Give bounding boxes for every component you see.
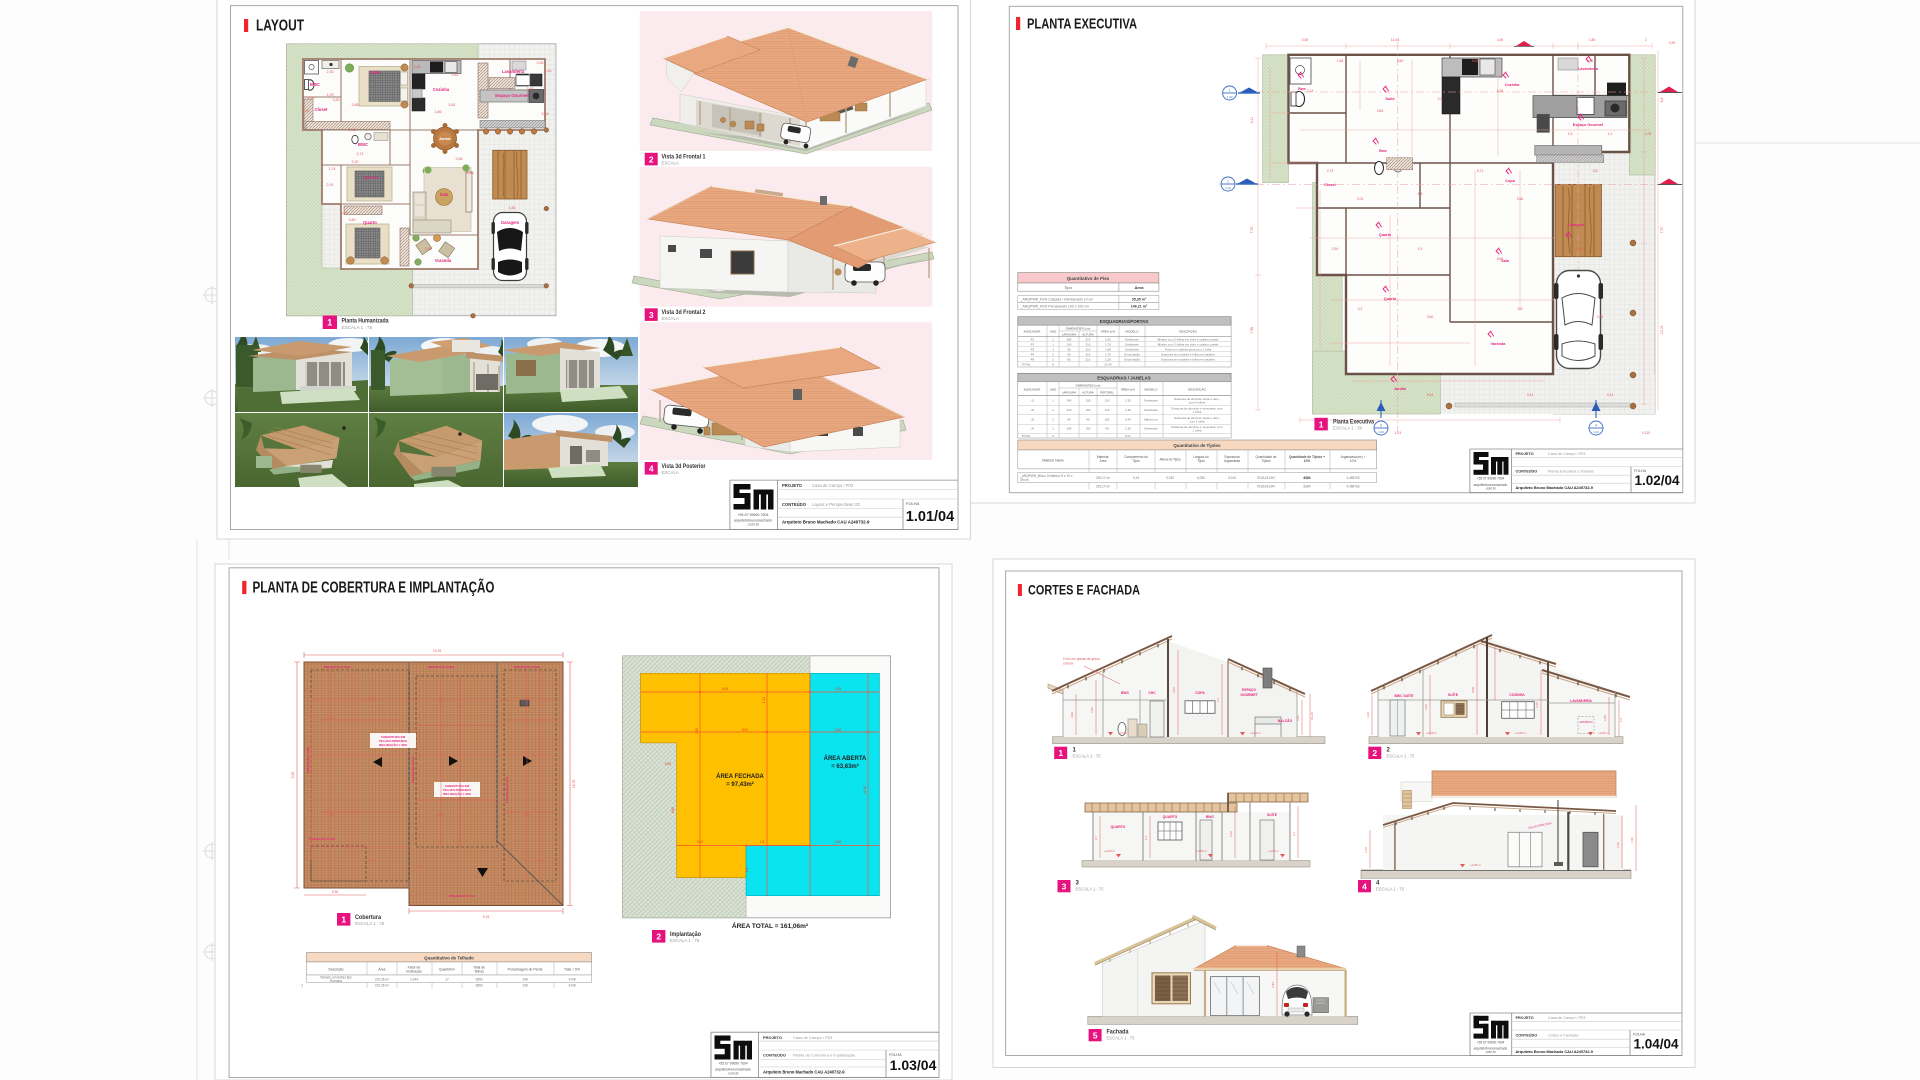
svg-text:3,16: 3,16: [1535, 702, 1539, 708]
svg-text:0,94: 0,94: [438, 813, 445, 817]
svg-text:1,70: 1,70: [1105, 342, 1111, 346]
svg-text:3,1: 3,1: [1292, 832, 1296, 837]
svg-text:LAYOUT: LAYOUT: [256, 18, 304, 35]
svg-text:Arquiteto Bruno Machado CAU A2: Arquiteto Bruno Machado CAU A240732-9: [1516, 485, 1594, 490]
svg-text:ARMÁRIO: ARMÁRIO: [1579, 720, 1593, 724]
svg-text:100: 100: [1086, 399, 1091, 403]
svg-text:222,36 m²: 222,36 m²: [375, 978, 389, 982]
svg-text:4,468763: 4,468763: [1346, 476, 1360, 480]
svg-text:ESCALA 1 : 75: ESCALA 1 : 75: [1107, 1036, 1136, 1041]
svg-text:+0,05 m: +0,05 m: [1196, 849, 1207, 853]
svg-text:Copa: Copa: [1505, 179, 1515, 183]
svg-text:Layout e Perspectivas 3D: Layout e Perspectivas 3D: [812, 502, 860, 507]
svg-text:3850: 3850: [475, 978, 482, 982]
svg-text:3,50: 3,50: [369, 697, 376, 701]
svg-text:Tipo: Tipo: [1064, 285, 1072, 290]
svg-text:Fachada: Fachada: [1107, 1029, 1129, 1036]
svg-text:Varanda: Varanda: [435, 258, 452, 263]
svg-text:1,86: 1,86: [1337, 59, 1344, 63]
svg-text:0,90: 0,90: [524, 697, 531, 701]
svg-text:Forro em placas de gesso: Forro em placas de gesso: [1063, 657, 1100, 661]
svg-text:Varanda: Varanda: [1491, 342, 1507, 346]
svg-text:6,80: 6,80: [671, 807, 675, 813]
svg-text:3,2: 3,2: [1358, 307, 1363, 311]
svg-text:PLAK: PLAK: [1310, 712, 1314, 720]
svg-text:Tijolos: Tijolos: [1261, 459, 1270, 463]
svg-text:3,81: 3,81: [452, 73, 459, 77]
svg-text:0,90: 0,90: [327, 813, 334, 817]
svg-text:CHC: CHC: [1148, 691, 1156, 695]
svg-text:210: 210: [1086, 352, 1091, 356]
svg-text:5,35: 5,35: [291, 772, 295, 779]
svg-text:8,94: 8,94: [742, 728, 748, 732]
svg-text:Cortes e Fachada: Cortes e Fachada: [1548, 1033, 1579, 1037]
svg-text:Máximo ar: Máximo ar: [1144, 417, 1158, 421]
svg-text:+0,00 m: +0,00 m: [1598, 731, 1609, 735]
svg-text:1,74: 1,74: [1395, 431, 1402, 435]
svg-text:.com.br: .com.br: [1485, 487, 1497, 491]
svg-text:100: 100: [1086, 408, 1091, 412]
svg-text:PROJETO: PROJETO: [1516, 1016, 1534, 1020]
svg-text:BALCÃO: BALCÃO: [1278, 718, 1293, 723]
svg-text:2,00: 2,00: [303, 109, 310, 113]
svg-text:Deslizante: Deslizante: [1144, 408, 1158, 412]
svg-text:ESQUADRIAS/PORTAS: ESQUADRIAS/PORTAS: [1100, 319, 1149, 324]
svg-text:TOTAL: TOTAL: [1021, 363, 1030, 367]
svg-text:BWC SUÍTE: BWC SUÍTE: [1394, 693, 1414, 698]
svg-text:2,04: 2,04: [1597, 315, 1604, 319]
svg-text:PROJEÇÃO CASA: PROJEÇÃO CASA: [324, 664, 351, 669]
svg-text:PEITORIL: PEITORIL: [1100, 391, 1114, 395]
svg-text:1,74: 1,74: [329, 167, 336, 171]
svg-text:ÁREA ABERTA: ÁREA ABERTA: [824, 755, 867, 762]
svg-text:5,34: 5,34: [1427, 393, 1434, 397]
svg-text:3,85: 3,85: [352, 103, 359, 107]
svg-text:3,29: 3,29: [341, 211, 348, 215]
svg-text:ESPAÇO: ESPAÇO: [1242, 688, 1256, 692]
svg-text:4148: 4148: [568, 984, 575, 988]
svg-text:3,85: 3,85: [509, 206, 516, 210]
svg-text:-P1: -P1: [1030, 337, 1035, 341]
svg-text:PLANTA DE COBERTURA E IMPLANTA: PLANTA DE COBERTURA E IMPLANTAÇÃO: [253, 578, 495, 596]
svg-text:2,56: 2,56: [369, 859, 376, 863]
svg-text:3,30: 3,30: [352, 160, 359, 164]
svg-text:-P2: -P2: [1030, 342, 1035, 346]
svg-text:Lavanderia: Lavanderia: [1578, 67, 1599, 71]
svg-text:INDICADOR: INDICADOR: [1024, 330, 1042, 334]
svg-text:150: 150: [1105, 417, 1110, 421]
svg-text:Closet: Closet: [315, 107, 328, 112]
svg-text:Quarto: Quarto: [1379, 233, 1392, 237]
svg-text:DESCRIÇÃO: DESCRIÇÃO: [1188, 387, 1207, 392]
svg-text:3,14: 3,14: [1527, 393, 1534, 397]
svg-text:2,54: 2,54: [1332, 247, 1339, 251]
svg-text:QUARTO: QUARTO: [1163, 815, 1178, 819]
svg-text:BWC: BWC: [358, 142, 368, 147]
svg-text:1.04/04: 1.04/04: [1633, 1037, 1679, 1052]
svg-text:Espaço Gourmet: Espaço Gourmet: [1573, 123, 1604, 127]
svg-text:3,60: 3,60: [1427, 315, 1434, 319]
svg-text:210: 210: [1086, 337, 1091, 341]
svg-text:Implantação: Implantação: [670, 931, 701, 938]
svg-text:7,70: 7,70: [1660, 227, 1664, 234]
svg-text:Tijolo: Tijolo: [1197, 459, 1205, 463]
svg-text:1.04: 1.04: [1378, 430, 1384, 434]
svg-text:90: 90: [1067, 352, 1071, 356]
svg-text:Material: Name: Material: Name: [1042, 459, 1064, 463]
svg-text:2,04: 2,04: [1357, 197, 1364, 201]
svg-text:1: 1: [1058, 748, 1063, 758]
svg-text:210: 210: [1086, 357, 1091, 361]
svg-text:Casa de Campo / P03: Casa de Campo / P03: [793, 1035, 833, 1040]
svg-text:2,30: 2,30: [327, 70, 334, 74]
svg-text:ESCALA: ESCALA: [662, 161, 679, 166]
svg-text:+0,05 m: +0,05 m: [1118, 731, 1129, 735]
svg-text:1.04: 1.04: [1227, 95, 1233, 99]
svg-text:2,91: 2,91: [327, 183, 334, 187]
svg-text:2,62: 2,62: [1296, 715, 1300, 721]
svg-text:com 6 folhas: com 6 folhas: [1189, 401, 1206, 405]
svg-text:3,55: 3,55: [1302, 38, 1309, 42]
svg-text:Deslizante: Deslizante: [1125, 337, 1139, 341]
svg-text:Telhas: Telhas: [474, 970, 484, 974]
svg-text:5,35: 5,35: [332, 890, 339, 894]
svg-text:+0,05 m: +0,05 m: [1104, 849, 1115, 853]
svg-text:Quantd/m²: Quantd/m²: [439, 968, 456, 972]
svg-text:222,36 m²: 222,36 m²: [375, 984, 389, 988]
svg-text:146,21 m²: 146,21 m²: [1131, 305, 1148, 309]
svg-text:2,30: 2,30: [1125, 399, 1131, 403]
svg-text:4: 4: [1595, 424, 1597, 428]
svg-text:210: 210: [1086, 342, 1091, 346]
svg-text:6,34: 6,34: [1497, 89, 1504, 93]
svg-text:1,6: 1,6: [745, 868, 749, 873]
svg-text:3,46: 3,46: [1497, 38, 1504, 42]
svg-text:2,14: 2,14: [1307, 89, 1314, 93]
svg-text:0,015: 0,015: [1228, 476, 1236, 480]
svg-text:3,80: 3,80: [349, 218, 356, 222]
svg-text:PROJETO: PROJETO: [782, 483, 803, 488]
svg-text:Planta Executiva: Planta Executiva: [1333, 419, 1374, 426]
svg-text:Planta de Cobertura e Implanta: Planta de Cobertura e Implantação: [793, 1052, 856, 1057]
svg-text:1.04: 1.04: [1225, 186, 1231, 190]
svg-text:ESCALA 1 : 75: ESCALA 1 : 75: [1076, 887, 1105, 892]
svg-text:Deslizante: Deslizante: [1144, 399, 1158, 403]
svg-text:BWC: BWC: [1206, 815, 1215, 819]
svg-text:Descrição: Descrição: [328, 968, 343, 972]
svg-text:+0,05 m: +0,05 m: [1268, 849, 1279, 853]
svg-text:ESCALA 1 : 75: ESCALA 1 : 75: [1376, 887, 1405, 892]
svg-text:BWC: BWC: [1121, 691, 1130, 695]
svg-text:Argamassa: Argamassa: [1224, 459, 1240, 463]
svg-text:0,34: 0,34: [1125, 417, 1131, 421]
svg-text:1: 1: [1319, 419, 1324, 429]
svg-text:CONTEÚDO: CONTEÚDO: [782, 502, 807, 507]
svg-text:SUÍTE: SUÍTE: [1448, 692, 1459, 697]
svg-text:-P3: -P3: [1030, 347, 1035, 351]
svg-text:LARGURA: LARGURA: [1062, 333, 1077, 337]
svg-text:ESCALA 1 : 75: ESCALA 1 : 75: [1387, 753, 1416, 758]
svg-text:-J1: -J1: [1030, 399, 1034, 403]
svg-text:PROJETO: PROJETO: [1516, 452, 1534, 456]
svg-text:13,09: 13,09: [1660, 326, 1664, 335]
svg-text:Planta Humanizada: Planta Humanizada: [342, 318, 389, 325]
svg-text:Área: Área: [1100, 459, 1107, 463]
svg-text:1,45: 1,45: [349, 128, 356, 132]
svg-text:2,74: 2,74: [1327, 169, 1334, 173]
svg-text:2,30: 2,30: [695, 728, 699, 734]
svg-text:TOTAL: TOTAL: [1021, 434, 1030, 438]
svg-text:+0,05 m: +0,05 m: [1515, 731, 1526, 735]
svg-text:4,5: 4,5: [1418, 247, 1423, 251]
svg-text:+55 67 99690 7604: +55 67 99690 7604: [718, 1062, 747, 1066]
svg-text:Arquiteto Bruno Machado CAU A2: Arquiteto Bruno Machado CAU A240732-9: [763, 1070, 845, 1075]
svg-text:Estrutura em madeira e folha e: Estrutura em madeira e folha em madeira: [1161, 352, 1215, 356]
svg-text:CONTEÚDO: CONTEÚDO: [1516, 1032, 1538, 1037]
svg-text:ESCALA 1 : 75: ESCALA 1 : 75: [1073, 753, 1102, 758]
svg-text:_ARQPWR_RVS Porcelanato 100 x: _ARQPWR_RVS Porcelanato 100 x 100 cm: [1020, 305, 1089, 309]
svg-text:CORTES E FACHADA: CORTES E FACHADA: [1028, 582, 1140, 598]
svg-text:40: 40: [1105, 427, 1109, 431]
svg-text:1,36: 1,36: [467, 171, 474, 175]
svg-text:_ARQPWR_RVS Calçada / Intertra: _ARQPWR_RVS Calçada / Intertravado 10 cm: [1020, 298, 1094, 302]
svg-text:Sala: Sala: [440, 192, 449, 197]
svg-text:17: 17: [445, 978, 449, 982]
svg-text:10%: 10%: [1304, 459, 1311, 463]
svg-text:198: 198: [522, 978, 528, 982]
svg-text:-J4: -J4: [1030, 427, 1034, 431]
svg-text:+55 67 99690 7604: +55 67 99690 7604: [1477, 477, 1505, 481]
svg-text:Vista 3d Frontal 1: Vista 3d Frontal 1: [662, 154, 706, 161]
svg-text:DESCRIÇÃO: DESCRIÇÃO: [1179, 329, 1198, 334]
svg-text:.com.br: .com.br: [727, 1071, 739, 1075]
svg-text:Closet: Closet: [1324, 183, 1336, 187]
svg-text:-J2: -J2: [1030, 408, 1034, 412]
svg-text:INCLINAÇÃO ± 30%: INCLINAÇÃO ± 30%: [443, 791, 471, 796]
svg-text:9,05: 9,05: [722, 687, 728, 691]
svg-text:Total + 5%: Total + 5%: [564, 968, 580, 972]
svg-text:DIMENSÕES (cm): DIMENSÕES (cm): [1076, 383, 1101, 388]
svg-text:0,99: 0,99: [1669, 41, 1676, 45]
svg-text:Arquiteto Bruno Machado CAU A2: Arquiteto Bruno Machado CAU A240732-9: [782, 520, 870, 525]
svg-text:5,6: 5,6: [418, 865, 423, 869]
svg-text:1,86: 1,86: [414, 65, 421, 69]
svg-text:4,5: 4,5: [1578, 247, 1583, 251]
svg-text:35,35 m²: 35,35 m²: [1132, 298, 1147, 302]
svg-text:80: 80: [1067, 357, 1071, 361]
svg-text:1.02/04: 1.02/04: [1634, 473, 1680, 488]
svg-text:5,66: 5,66: [1472, 59, 1479, 63]
svg-text:3,95: 3,95: [835, 687, 841, 691]
svg-text:4: 4: [649, 464, 654, 474]
svg-text:39 cm: 39 cm: [1020, 478, 1029, 482]
svg-text:Casa de Campo / P03: Casa de Campo / P03: [1548, 1016, 1585, 1020]
svg-text:ÁREA TOTAL = 161,06m²: ÁREA TOTAL = 161,06m²: [732, 921, 809, 930]
svg-text:Planta Executiva e Tabelas: Planta Executiva e Tabelas: [1548, 469, 1594, 473]
svg-text:15,29: 15,29: [433, 649, 442, 653]
svg-text:5,08: 5,08: [1471, 687, 1475, 693]
svg-text:Estrutura em madeira e folha e: Estrutura em madeira e folha em madeira: [1161, 357, 1215, 361]
svg-text:.com.br: .com.br: [1485, 1050, 1497, 1054]
svg-text:1,89: 1,89: [1105, 347, 1111, 351]
svg-text:PLANTA EXECUTIVA: PLANTA EXECUTIVA: [1027, 16, 1137, 33]
svg-text:2,7: 2,7: [1144, 836, 1148, 841]
svg-text:Giro/rotação: Giro/rotação: [1124, 357, 1140, 361]
svg-text:FOLHA: FOLHA: [906, 501, 920, 506]
svg-text:8384: 8384: [1303, 485, 1310, 489]
svg-text:Cozinha: Cozinha: [433, 87, 450, 92]
svg-text:+0,05 m: +0,05 m: [1426, 731, 1437, 735]
svg-text:0,110: 0,110: [1642, 431, 1650, 435]
svg-text:3850: 3850: [475, 984, 482, 988]
svg-text:110: 110: [1105, 408, 1110, 412]
svg-text:ALTURA: ALTURA: [1082, 333, 1094, 337]
svg-text:0,90: 0,90: [524, 813, 531, 817]
svg-text:3: 3: [301, 984, 303, 988]
svg-text:6,16: 6,16: [542, 112, 549, 116]
svg-text:BWC: BWC: [310, 82, 320, 87]
svg-text:110: 110: [1067, 408, 1072, 412]
svg-text:3,60: 3,60: [1397, 59, 1404, 63]
svg-text:5,8: 5,8: [1518, 307, 1523, 311]
svg-text:240: 240: [1067, 399, 1072, 403]
svg-text:-P4: -P4: [1030, 352, 1035, 356]
svg-text:GOURMET: GOURMET: [1240, 693, 1258, 697]
svg-text:ESCALA 1 : 75: ESCALA 1 : 75: [342, 325, 373, 330]
svg-text:Deslizante: Deslizante: [1125, 347, 1139, 351]
svg-text:Quantitativo de Piso: Quantitativo de Piso: [1067, 276, 1110, 281]
svg-text:280: 280: [1067, 337, 1072, 341]
svg-text:1,2: 1,2: [1608, 132, 1613, 136]
svg-text:Garagem: Garagem: [1568, 223, 1585, 227]
svg-text:Garagem: Garagem: [501, 220, 519, 225]
svg-text:40: 40: [1086, 417, 1090, 421]
svg-text:1,044: 1,044: [410, 978, 418, 982]
svg-text:Inclinação: Inclinação: [406, 970, 421, 974]
svg-text:0,92: 0,92: [697, 840, 703, 844]
svg-text:Blindex com 3 folhas em vidro: Blindex com 3 folhas em vidro e opalina,…: [1158, 337, 1219, 341]
svg-text:Porcentagem de Perda: Porcentagem de Perda: [508, 968, 543, 972]
svg-text:COPA: COPA: [1195, 691, 1205, 695]
svg-text:PROJETO: PROJETO: [763, 1035, 782, 1040]
svg-text:1,2: 1,2: [1619, 718, 1623, 723]
svg-text:Vista 3d Frontal 2: Vista 3d Frontal 2: [662, 309, 706, 316]
svg-text:3,86: 3,86: [435, 110, 442, 114]
svg-text:140: 140: [1067, 342, 1072, 346]
svg-text:0,8: 0,8: [1593, 169, 1598, 173]
svg-text:Giro/rotação: Giro/rotação: [1124, 352, 1140, 356]
svg-text:Tijolo: Tijolo: [1132, 459, 1140, 463]
svg-text:2: 2: [1372, 748, 1377, 758]
svg-text:20,76: 20,76: [1104, 363, 1112, 367]
svg-text:2,16: 2,16: [1616, 842, 1620, 848]
svg-text:90: 90: [1067, 347, 1071, 351]
svg-text:CONTEÚDO: CONTEÚDO: [1516, 468, 1538, 473]
svg-text:210: 210: [1086, 347, 1091, 351]
svg-text:2: 2: [649, 154, 654, 164]
svg-text:1: 1: [1229, 89, 1231, 93]
svg-text:LAVANDERIA: LAVANDERIA: [1570, 699, 1592, 703]
svg-text:= 97,43m²: = 97,43m²: [726, 781, 754, 788]
svg-text:1: 1: [1227, 180, 1229, 184]
svg-text:comum: comum: [1063, 662, 1074, 666]
svg-text:0,19: 0,19: [1133, 476, 1139, 480]
svg-text:7618,431347: 7618,431347: [1257, 485, 1276, 489]
svg-text:Blindex com 3 folhas em vidro: Blindex com 3 folhas em vidro e opalina,…: [1158, 342, 1219, 346]
svg-text:+55 67 99690 7604: +55 67 99690 7604: [737, 513, 768, 517]
svg-text:Jantar: Jantar: [439, 136, 451, 141]
svg-text:Área: Área: [1135, 285, 1145, 290]
svg-text:1.04: 1.04: [1593, 430, 1599, 434]
svg-text:Quantitativo de Telhado: Quantitativo de Telhado: [424, 955, 474, 960]
svg-text:3,52: 3,52: [1630, 837, 1634, 843]
svg-text:Quarto: Quarto: [1384, 297, 1397, 301]
svg-text:.com.br: .com.br: [747, 523, 760, 527]
svg-text:2,84: 2,84: [1271, 982, 1275, 988]
svg-text:Suíte: Suíte: [370, 70, 381, 75]
svg-text:MODELO: MODELO: [1125, 330, 1139, 334]
svg-text:PROJEÇÃO CASA: PROJEÇÃO CASA: [410, 756, 415, 783]
svg-text:ESCALA 1 : 75: ESCALA 1 : 75: [355, 921, 385, 926]
svg-text:1,5: 1,5: [1568, 132, 1573, 136]
svg-text:Jardim: Jardim: [1394, 387, 1407, 391]
svg-text:0,90: 0,90: [308, 96, 315, 100]
svg-text:6,30: 6,30: [1105, 337, 1111, 341]
svg-text:1,40: 1,40: [545, 69, 552, 73]
svg-text:-J3: -J3: [1030, 417, 1034, 421]
svg-text:PROJEÇÃO CASA: PROJEÇÃO CASA: [504, 776, 509, 803]
svg-text:3,95: 3,95: [835, 728, 841, 732]
svg-text:Deslizante: Deslizante: [1144, 427, 1158, 431]
svg-text:11,45: 11,45: [863, 786, 867, 794]
svg-text:1,05: 1,05: [1645, 132, 1652, 136]
svg-text:14,45: 14,45: [1391, 38, 1400, 42]
svg-text:1,26: 1,26: [1105, 357, 1111, 361]
svg-text:10%: 10%: [1350, 459, 1357, 463]
svg-text:+0,05 m: +0,05 m: [1470, 863, 1481, 867]
svg-text:-P5: -P5: [1030, 357, 1035, 361]
svg-text:2,5: 2,5: [1438, 97, 1443, 101]
svg-text:1: 1: [341, 915, 346, 925]
svg-text:7618,431347: 7618,431347: [1257, 476, 1276, 480]
svg-text:ESCALA 1 : 75: ESCALA 1 : 75: [670, 938, 700, 943]
svg-text:PROJEÇÃO CASA: PROJEÇÃO CASA: [514, 664, 541, 669]
svg-text:4,468763: 4,468763: [1346, 485, 1360, 489]
svg-text:4: 4: [1362, 881, 1367, 891]
svg-text:ÁREA (m²): ÁREA (m²): [1121, 388, 1135, 392]
svg-text:5,8: 5,8: [1660, 98, 1664, 103]
svg-text:Suíte: Suíte: [1385, 97, 1394, 101]
svg-text:2,55: 2,55: [1603, 715, 1607, 721]
svg-text:4,11: 4,11: [1250, 117, 1254, 123]
svg-text:Área: Área: [378, 968, 385, 972]
svg-text:3,55: 3,55: [537, 61, 544, 65]
svg-text:Quantitativo de Tijolos: Quantitativo de Tijolos: [1173, 443, 1221, 448]
svg-text:4,5: 4,5: [1418, 192, 1423, 196]
svg-text:2: 2: [1645, 38, 1647, 42]
svg-text:1,85: 1,85: [1589, 38, 1596, 42]
svg-text:+55 67 99690 7604: +55 67 99690 7604: [1477, 1040, 1505, 1044]
svg-text:2: 2: [656, 932, 661, 942]
svg-text:4,52: 4,52: [1172, 687, 1176, 693]
svg-text:3,95: 3,95: [835, 840, 841, 844]
svg-text:1 folha: 1 folha: [1193, 429, 1202, 433]
svg-text:1,70: 1,70: [1105, 352, 1111, 356]
svg-text:8384: 8384: [1303, 476, 1310, 480]
svg-text:Arquiteto Bruno Machado CAU A2: Arquiteto Bruno Machado CAU A240732-9: [1516, 1049, 1594, 1054]
svg-text:Quarto: Quarto: [363, 220, 377, 225]
svg-text:0,70: 0,70: [327, 716, 334, 720]
